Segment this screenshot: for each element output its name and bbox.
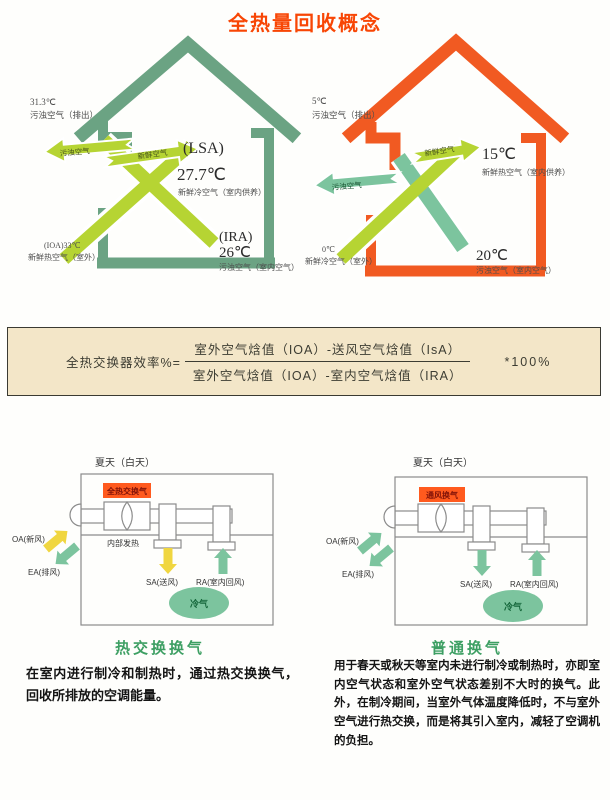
exchange-duct-cap <box>70 504 81 526</box>
exchange-internal-heat-label: 内部发热 <box>107 538 139 548</box>
summer-exhaust-label: 污浊空气（排出） <box>30 110 98 120</box>
normal-sa-arrow <box>473 550 491 576</box>
exchange-sa-grille <box>154 540 181 548</box>
formula-denominator: 室外空气焓值（IOA）-室内空气焓值（IRA） <box>185 362 471 384</box>
winter-return-temp: 20℃ <box>476 248 508 264</box>
winter-exhaust-temp: 5℃ <box>312 96 327 106</box>
normal-season-label: 夏天（白天） <box>413 456 473 469</box>
winter-house-roof <box>351 42 560 134</box>
exchange-caption: 热交换换气 <box>15 637 305 658</box>
summer-outdoor-temp: (IOA)33℃ <box>44 241 81 250</box>
summer-house-diagram: 污浊空气 新鲜空气 31.3℃ 污浊空气（排出） (LSA) 27.7℃ 新鲜冷… <box>28 44 299 272</box>
formula-numerator: 室外空气焓值（IOA）-送风空气焓值（IsA） <box>185 339 471 362</box>
winter-supply-temp: 15℃ <box>482 146 516 163</box>
exchange-ra-arrow <box>214 548 232 574</box>
normal-sa-unit <box>473 506 490 542</box>
exchange-description: 在室内进行制冷和制热时，通过热交换换气，回收所排放的空调能量。 <box>26 663 298 707</box>
exchange-unit-label: 全热交换气 <box>106 486 147 496</box>
winter-supply-label: 新鲜热空气（室内供养） <box>482 167 570 177</box>
winter-return-label: 污浊空气（室内空气） <box>476 265 556 275</box>
normal-ra-grille <box>522 544 549 552</box>
summer-return-temp: 26℃ <box>219 245 251 261</box>
exchange-ra-grille <box>208 542 235 550</box>
normal-duct-cap <box>384 506 395 528</box>
exchange-cool-air-label: 冷气 <box>190 598 208 609</box>
normal-sa-grille <box>468 542 495 550</box>
exchange-ea-label: EA(排风) <box>28 567 60 577</box>
summer-supply-code: (LSA) <box>183 140 224 157</box>
summer-house-right-wall <box>251 133 269 263</box>
normal-sa-label: SA(送风) <box>460 579 492 589</box>
summer-return-label: 污浊空气（室内空气） <box>219 262 299 272</box>
winter-house-diagram: 污浊空气 新鲜空气 5℃ 污浊空气（排出） 15℃ 新鲜热空气（室内供养） 20… <box>305 42 570 275</box>
winter-exhaust-label: 污浊空气（排出） <box>312 110 380 120</box>
summer-exhaust-temp: 31.3℃ <box>30 97 56 107</box>
summer-supply-label: 新鲜冷空气（室内供养） <box>178 187 266 197</box>
exchange-ra-label: RA(室内回风) <box>196 577 245 587</box>
summer-return-code: (IRA) <box>219 230 253 245</box>
summer-supply-temp: 27.7℃ <box>177 165 226 184</box>
formula-fraction: 室外空气焓值（IOA）-送风空气焓值（IsA） 室外空气焓值（IOA）-室内空气… <box>185 339 471 384</box>
normal-ra-arrow <box>528 550 546 576</box>
exchange-ra-unit <box>213 506 230 542</box>
exchange-sa-unit <box>159 504 176 540</box>
efficiency-formula-box: 全热交换器效率%= 室外空气焓值（IOA）-送风空气焓值（IsA） 室外空气焓值… <box>7 327 601 396</box>
formula-label: 全热交换器效率%= <box>66 352 181 371</box>
exchange-ventilation-diagram: 夏天（白天） 全热交换气 内部发热 OA(新风) EA(排风) SA(送风) R… <box>12 456 273 625</box>
summer-outdoor-label: 新鲜热空气（室外） <box>28 252 100 262</box>
normal-ra-unit <box>527 508 544 544</box>
normal-ra-label: RA(室内回风) <box>510 579 559 589</box>
normal-oa-label: OA(新风) <box>326 536 359 546</box>
exchange-season-label: 夏天（白天） <box>95 456 155 469</box>
summer-house-roof <box>83 44 292 134</box>
normal-ventilation-diagram: 夏天（白天） 通风换气 OA(新风) EA(排风) SA(送风) RA(室内回风… <box>326 456 587 625</box>
exchange-sa-arrow <box>159 548 177 574</box>
normal-ea-label: EA(排风) <box>342 569 374 579</box>
exchange-oa-label: OA(新风) <box>12 534 45 544</box>
formula-multiplier: *100% <box>504 355 551 369</box>
exchange-sa-label: SA(送风) <box>146 577 178 587</box>
winter-outdoor-label: 新鲜冷空气（室外） <box>305 256 377 266</box>
normal-description: 用于春天或秋天等室内未进行制冷或制热时，亦即室内空气状态和室外空气状态差别不大时… <box>334 657 600 750</box>
normal-cool-air-label: 冷气 <box>504 601 522 612</box>
normal-unit-label: 通风换气 <box>426 490 458 500</box>
winter-outdoor-temp: 0℃ <box>322 245 335 254</box>
winter-house-right-wall <box>521 138 541 271</box>
normal-caption: 普通换气 <box>322 637 610 658</box>
